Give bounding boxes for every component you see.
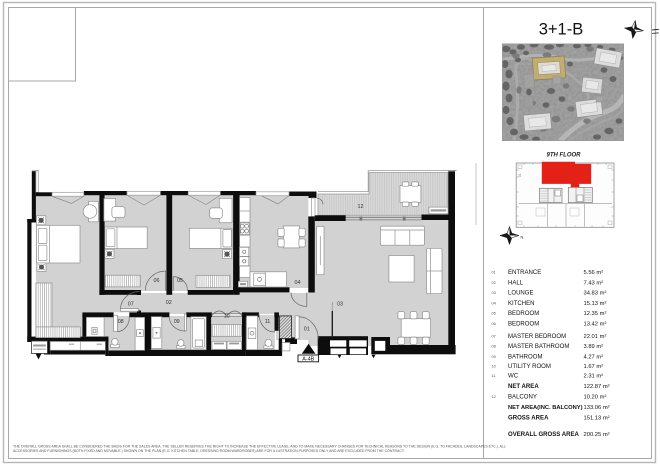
svg-text:04: 04 bbox=[295, 280, 301, 286]
svg-text:06: 06 bbox=[492, 321, 496, 326]
svg-text:7.43 m²: 7.43 m² bbox=[584, 280, 604, 286]
svg-text:22.01 m²: 22.01 m² bbox=[584, 334, 607, 340]
svg-text:ENTRANCE: ENTRANCE bbox=[508, 270, 541, 276]
svg-text:BATHROOM: BATHROOM bbox=[508, 354, 543, 360]
svg-text:MASTER BATHROOM: MASTER BATHROOM bbox=[508, 344, 569, 350]
svg-text:09: 09 bbox=[492, 354, 496, 359]
svg-text:OVERALL GROSS AREA: OVERALL GROSS AREA bbox=[508, 432, 580, 438]
svg-text:4.27 m²: 4.27 m² bbox=[584, 354, 604, 360]
svg-text:05: 05 bbox=[492, 311, 496, 316]
svg-text:02: 02 bbox=[492, 280, 496, 285]
svg-text:03: 03 bbox=[492, 290, 496, 295]
svg-text:2.31 m²: 2.31 m² bbox=[584, 374, 604, 380]
svg-text:02: 02 bbox=[166, 300, 172, 306]
svg-text:07: 07 bbox=[128, 302, 134, 308]
svg-text:NET AREA(INC. BALCONY): NET AREA(INC. BALCONY) bbox=[508, 405, 583, 411]
svg-text:3.89 m²: 3.89 m² bbox=[584, 344, 604, 350]
svg-text:151.13 m²: 151.13 m² bbox=[584, 416, 610, 422]
svg-text:12: 12 bbox=[358, 204, 364, 210]
svg-text:3+1-B: 3+1-B bbox=[539, 21, 584, 39]
svg-text:01: 01 bbox=[304, 327, 310, 333]
svg-text:THE OVERALL GROSS AREA SHALL B: THE OVERALL GROSS AREA SHALL BE CONSIDER… bbox=[13, 445, 506, 449]
svg-text:LOUNGE: LOUNGE bbox=[508, 291, 534, 297]
svg-text:BALCONY: BALCONY bbox=[508, 395, 537, 401]
svg-text:BEDROOM: BEDROOM bbox=[508, 322, 539, 328]
svg-text:10: 10 bbox=[224, 314, 230, 320]
svg-text:05: 05 bbox=[177, 278, 183, 284]
svg-text:11: 11 bbox=[265, 319, 271, 325]
svg-text:GROSS AREA: GROSS AREA bbox=[508, 416, 549, 422]
svg-text:MASTER BEDROOM: MASTER BEDROOM bbox=[508, 334, 566, 340]
svg-text:08: 08 bbox=[118, 319, 124, 325]
svg-text:12: 12 bbox=[492, 394, 496, 399]
svg-text:A-4B: A-4B bbox=[302, 357, 314, 363]
svg-text:15.13 m²: 15.13 m² bbox=[584, 301, 607, 307]
svg-text:10.20 m²: 10.20 m² bbox=[584, 395, 607, 401]
svg-text:BEDROOM: BEDROOM bbox=[508, 311, 539, 317]
svg-text:HALL: HALL bbox=[508, 280, 524, 286]
svg-text:N: N bbox=[521, 235, 524, 240]
svg-text:200.25 m²: 200.25 m² bbox=[584, 432, 610, 438]
svg-text:08: 08 bbox=[492, 344, 496, 349]
svg-text:KITCHEN: KITCHEN bbox=[508, 301, 535, 307]
svg-text:ACCESSORIES AND FURNISHINGS (B: ACCESSORIES AND FURNISHINGS (BOTH FIXED … bbox=[13, 449, 405, 453]
svg-text:34.83 m²: 34.83 m² bbox=[584, 291, 607, 297]
svg-text:01: 01 bbox=[518, 173, 522, 177]
svg-text:09: 09 bbox=[174, 319, 180, 325]
svg-text:WC: WC bbox=[508, 374, 519, 380]
svg-text:03: 03 bbox=[337, 302, 343, 308]
svg-text:1.67 m²: 1.67 m² bbox=[584, 364, 604, 370]
svg-text:9TH FLOOR: 9TH FLOOR bbox=[547, 153, 582, 159]
svg-text:UTILITY ROOM: UTILITY ROOM bbox=[508, 364, 551, 370]
svg-text:12.35 m²: 12.35 m² bbox=[584, 311, 607, 317]
svg-text:5.56 m²: 5.56 m² bbox=[584, 270, 604, 276]
svg-text:07: 07 bbox=[492, 333, 496, 338]
svg-text:11: 11 bbox=[492, 373, 496, 378]
svg-text:133.06 m²: 133.06 m² bbox=[584, 405, 610, 411]
svg-text:13.42 m²: 13.42 m² bbox=[584, 322, 607, 328]
svg-text:122.87 m²: 122.87 m² bbox=[584, 384, 610, 390]
svg-text:NET AREA: NET AREA bbox=[508, 384, 539, 390]
svg-text:01: 01 bbox=[492, 270, 496, 275]
svg-text:06: 06 bbox=[154, 278, 160, 284]
